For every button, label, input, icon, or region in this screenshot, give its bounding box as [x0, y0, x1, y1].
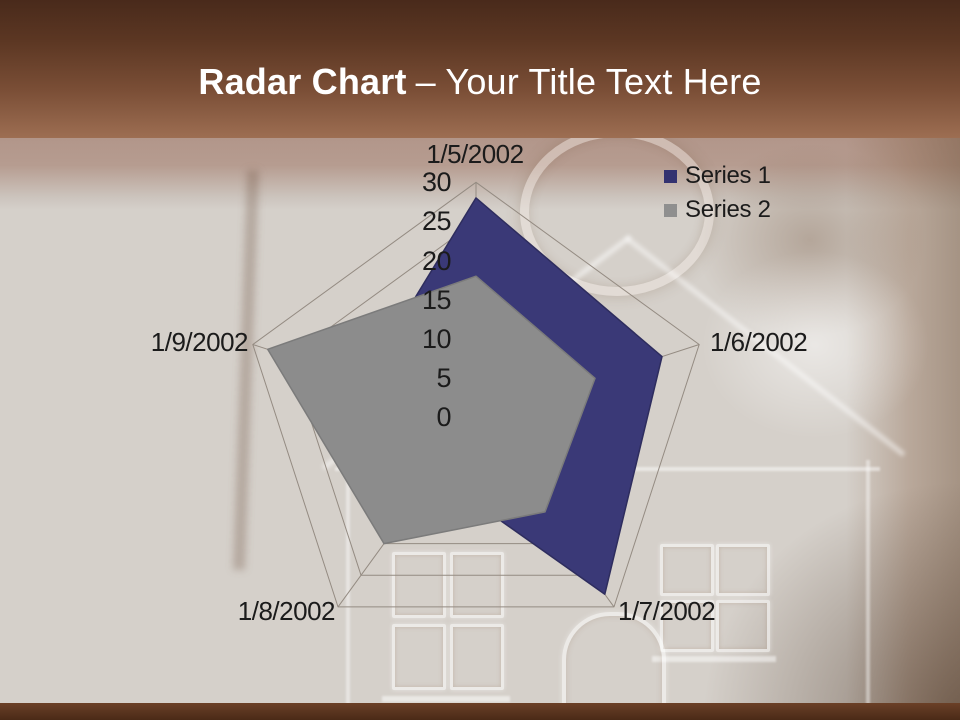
slide: 051015202530 1/5/2002 1/6/2002 1/7/2002 …: [0, 0, 960, 720]
category-label: 1/5/2002: [325, 141, 625, 167]
title-bar: Radar Chart– Your Title Text Here: [0, 0, 960, 138]
value-axis-tick: 5: [355, 363, 451, 393]
slide-title-rest: – Your Title Text Here: [416, 61, 762, 102]
legend-item-series-1: Series 1: [664, 163, 771, 189]
category-label: 1/6/2002: [710, 329, 807, 355]
series-1-swatch-icon: [664, 170, 677, 183]
legend-label: Series 2: [685, 196, 771, 224]
slide-title: Radar Chart– Your Title Text Here: [0, 61, 960, 103]
footer-bar: [0, 703, 960, 720]
value-axis-tick: 30: [355, 167, 451, 197]
legend-item-series-2: Series 2: [664, 197, 771, 223]
category-label: 1/9/2002: [48, 329, 248, 355]
value-axis-tick: 20: [355, 246, 451, 276]
series-2-swatch-icon: [664, 204, 677, 217]
chart-legend: Series 1 Series 2: [664, 163, 771, 231]
category-label: 1/8/2002: [135, 598, 335, 624]
slide-title-bold: Radar Chart: [198, 61, 406, 102]
value-axis-tick: 15: [355, 285, 451, 315]
value-axis-tick: 10: [355, 324, 451, 354]
legend-label: Series 1: [685, 162, 771, 190]
value-axis-tick: 25: [355, 206, 451, 236]
value-axis-tick: 0: [355, 402, 451, 432]
category-label: 1/7/2002: [618, 598, 715, 624]
